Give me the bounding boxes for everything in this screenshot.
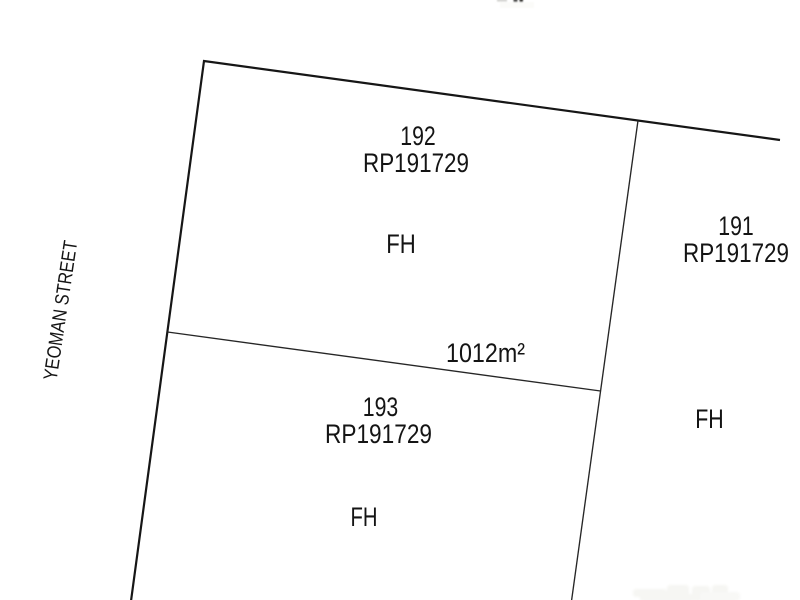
svg-text:FH: FH (695, 404, 724, 434)
svg-text:193: 193 (363, 392, 399, 422)
svg-text:RP191729: RP191729 (683, 238, 789, 268)
svg-text:1012m²: 1012m² (446, 338, 525, 368)
svg-text:191: 191 (718, 211, 754, 241)
svg-text:192: 192 (400, 121, 436, 151)
svg-text:FH: FH (351, 502, 378, 532)
svg-text:RP191729: RP191729 (363, 148, 469, 178)
svg-text:RP191729: RP191729 (325, 419, 432, 449)
svg-text:FH: FH (386, 229, 416, 259)
